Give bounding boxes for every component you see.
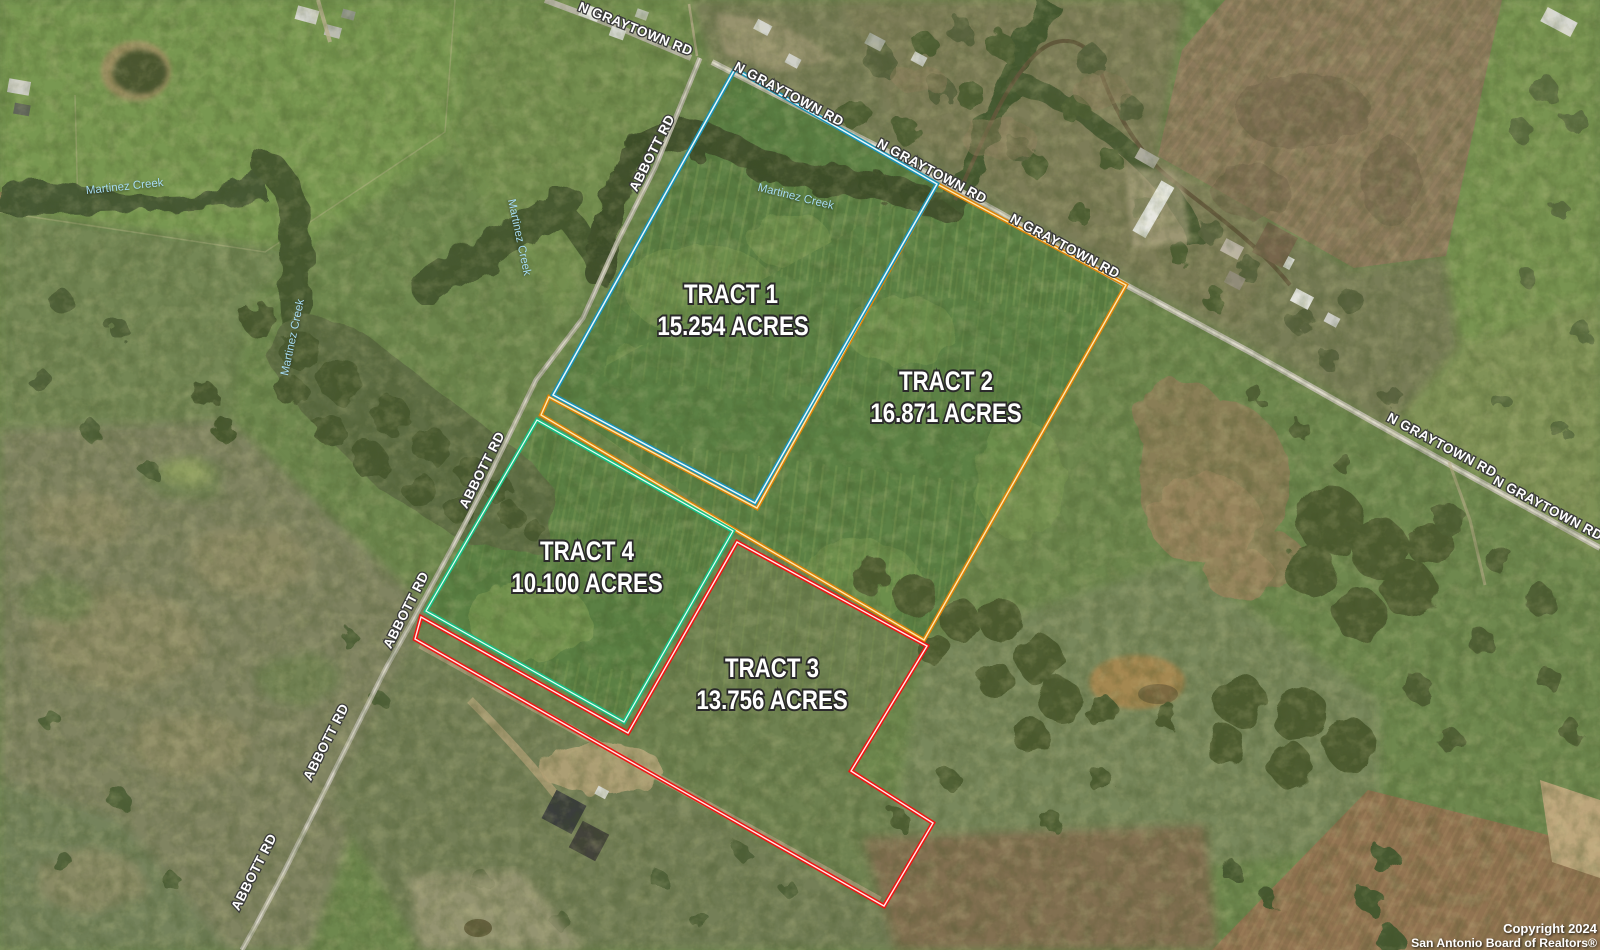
svg-text:Copyright 2024: Copyright 2024 [1503,921,1598,936]
svg-text:13.756 ACRES: 13.756 ACRES [696,686,847,715]
svg-text:TRACT 1: TRACT 1 [684,280,778,309]
svg-text:10.100 ACRES: 10.100 ACRES [511,569,662,598]
svg-text:TRACT 4: TRACT 4 [540,537,634,566]
svg-text:15.254 ACRES: 15.254 ACRES [657,312,808,341]
svg-text:San Antonio Board of Realtors®: San Antonio Board of Realtors® [1411,936,1597,950]
svg-text:TRACT 2: TRACT 2 [899,367,993,396]
svg-text:16.871 ACRES: 16.871 ACRES [870,399,1021,428]
svg-text:TRACT 3: TRACT 3 [725,654,819,683]
